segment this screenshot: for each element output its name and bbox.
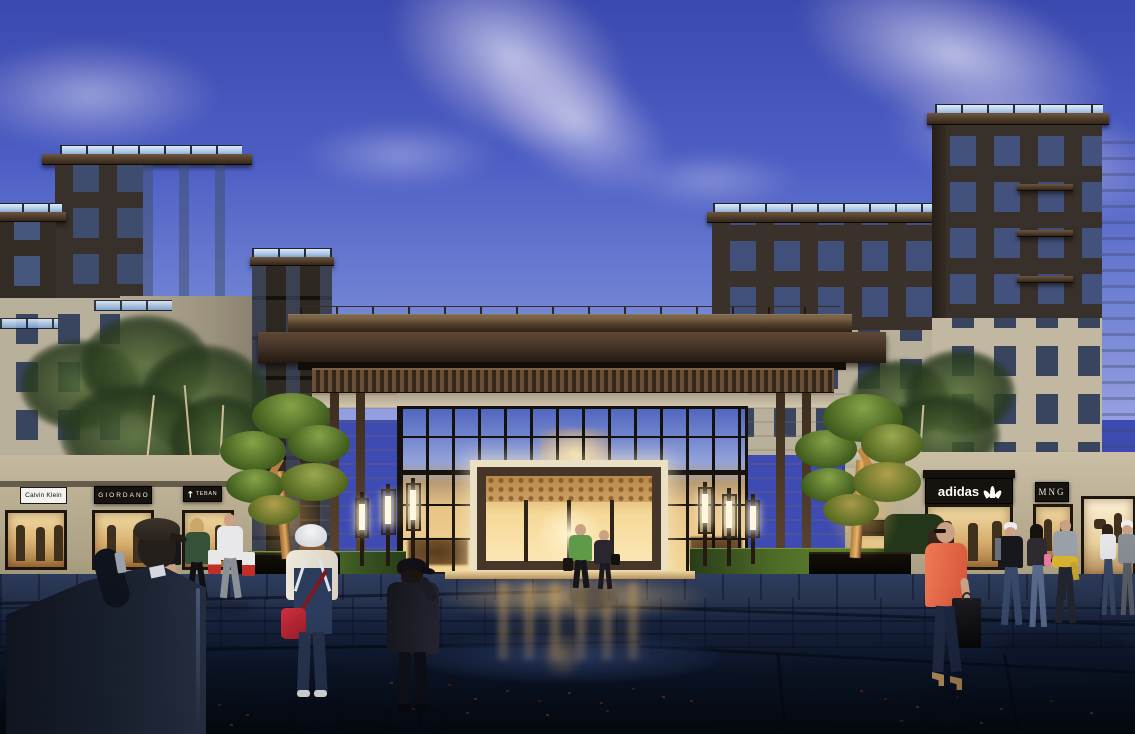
dusk-vignette-overlay <box>0 0 1135 734</box>
architectural-rendering: Calvin Klein GIORDANO TEBAN adidas MNG <box>0 0 1135 734</box>
